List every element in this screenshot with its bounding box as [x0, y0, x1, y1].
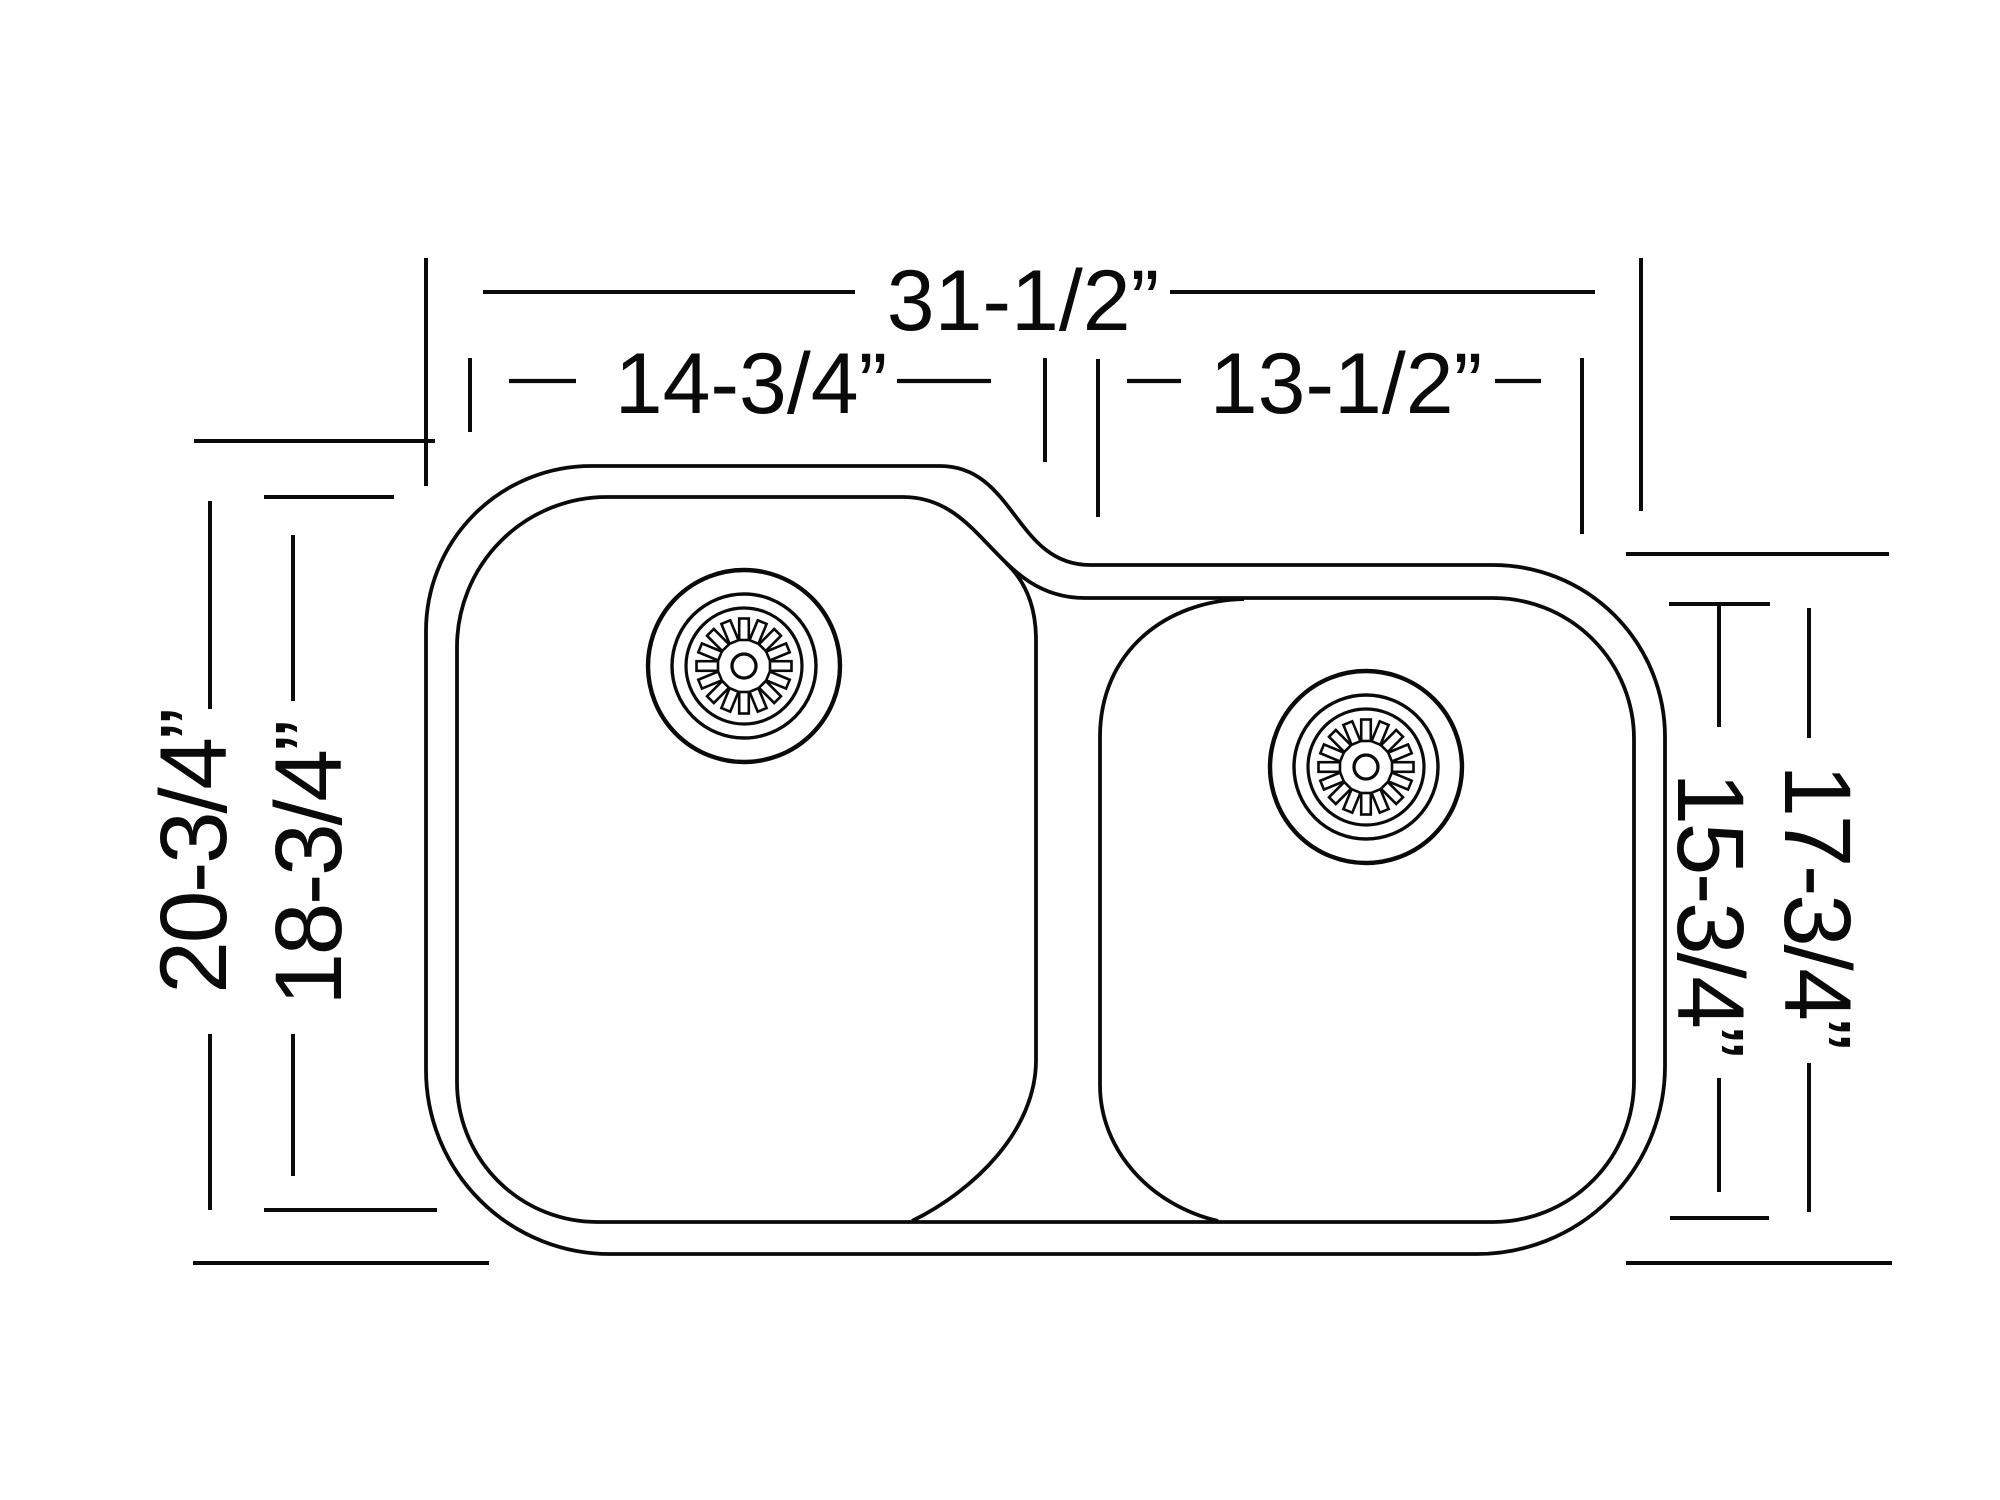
- svg-text:15-3/4”: 15-3/4”: [1657, 772, 1763, 1056]
- svg-text:20-3/4”: 20-3/4”: [141, 710, 247, 994]
- svg-text:17-3/4”: 17-3/4”: [1764, 764, 1870, 1048]
- svg-text:13-1/2”: 13-1/2”: [1210, 336, 1483, 432]
- svg-text:31-1/2”: 31-1/2”: [887, 253, 1160, 349]
- svg-text:14-3/4”: 14-3/4”: [615, 336, 888, 432]
- svg-text:18-3/4”: 18-3/4”: [256, 722, 362, 1006]
